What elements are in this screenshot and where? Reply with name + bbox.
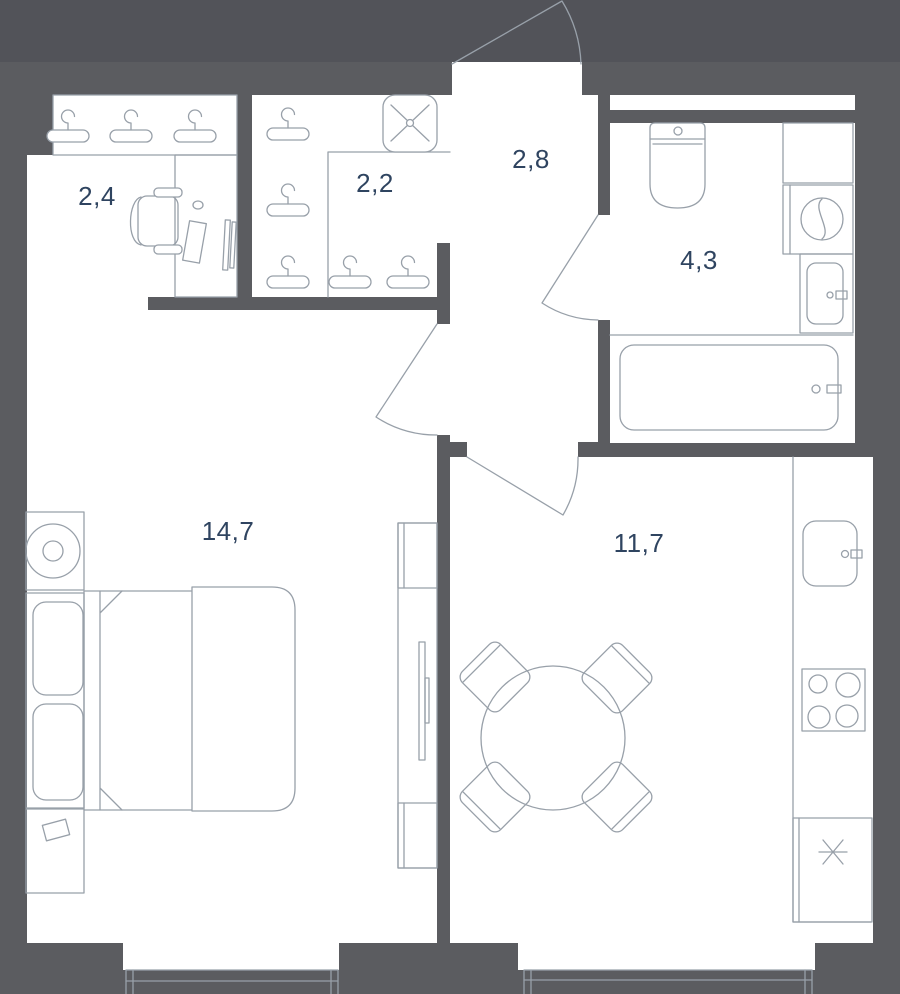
- room-area-label: 11,7: [614, 528, 665, 558]
- floor-wardrobe-top: [53, 95, 237, 155]
- room-area-label: 14,7: [202, 516, 255, 546]
- room-area-label: 2,4: [78, 181, 116, 211]
- floor-bedroom-window-niche: [123, 943, 339, 970]
- wall-stub-hall: [437, 243, 450, 324]
- room-area-label: 2,8: [512, 144, 550, 174]
- floors: [27, 62, 873, 970]
- ceiling-fan-icon: [383, 95, 437, 152]
- floor-entry-threshold: [452, 62, 582, 95]
- floor-kitchen-doorway: [467, 442, 578, 457]
- room-area-label: 4,3: [680, 245, 718, 275]
- floor-kitchen-window-niche: [518, 943, 815, 970]
- floor-bathroom-doorway: [598, 215, 610, 320]
- floor-bath-shaft: [610, 95, 855, 110]
- floor-plan-page: 2,4 2,2 2,8 4,3 14,7 11,7: [0, 0, 900, 994]
- duvet: [192, 587, 295, 811]
- floor-wardrobe-passage: [27, 297, 148, 310]
- room-area-label: 2,2: [356, 168, 394, 198]
- floor-bedroom-doorway: [437, 324, 450, 435]
- outside-strip: [0, 0, 900, 62]
- floor-bathroom: [610, 123, 855, 443]
- toilet: [650, 123, 705, 208]
- floor-plan: 2,4 2,2 2,8 4,3 14,7 11,7: [0, 0, 900, 994]
